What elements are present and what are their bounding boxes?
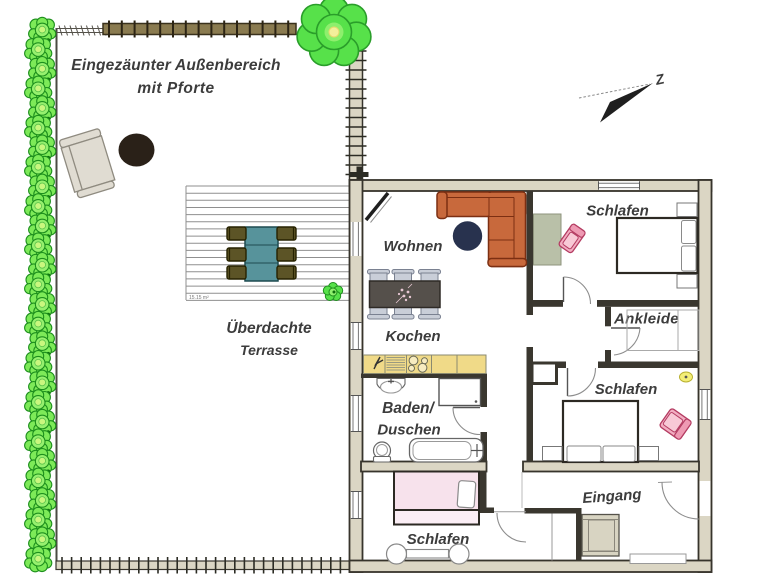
svg-text:Baden/: Baden/	[382, 400, 435, 417]
svg-text:Wohnen: Wohnen	[384, 238, 443, 255]
svg-text:Eingezäunter Außenbereich: Eingezäunter Außenbereich	[71, 57, 280, 74]
svg-text:Terrasse: Terrasse	[240, 342, 298, 358]
svg-text:Schlafen: Schlafen	[595, 381, 658, 398]
svg-text:Kochen: Kochen	[385, 328, 440, 345]
svg-text:15.15 m²: 15.15 m²	[189, 295, 209, 301]
svg-text:mit Pforte: mit Pforte	[137, 80, 214, 97]
svg-text:Duschen: Duschen	[377, 422, 440, 439]
svg-text:Ankleide: Ankleide	[613, 311, 679, 328]
svg-text:Überdachte: Überdachte	[226, 320, 312, 337]
